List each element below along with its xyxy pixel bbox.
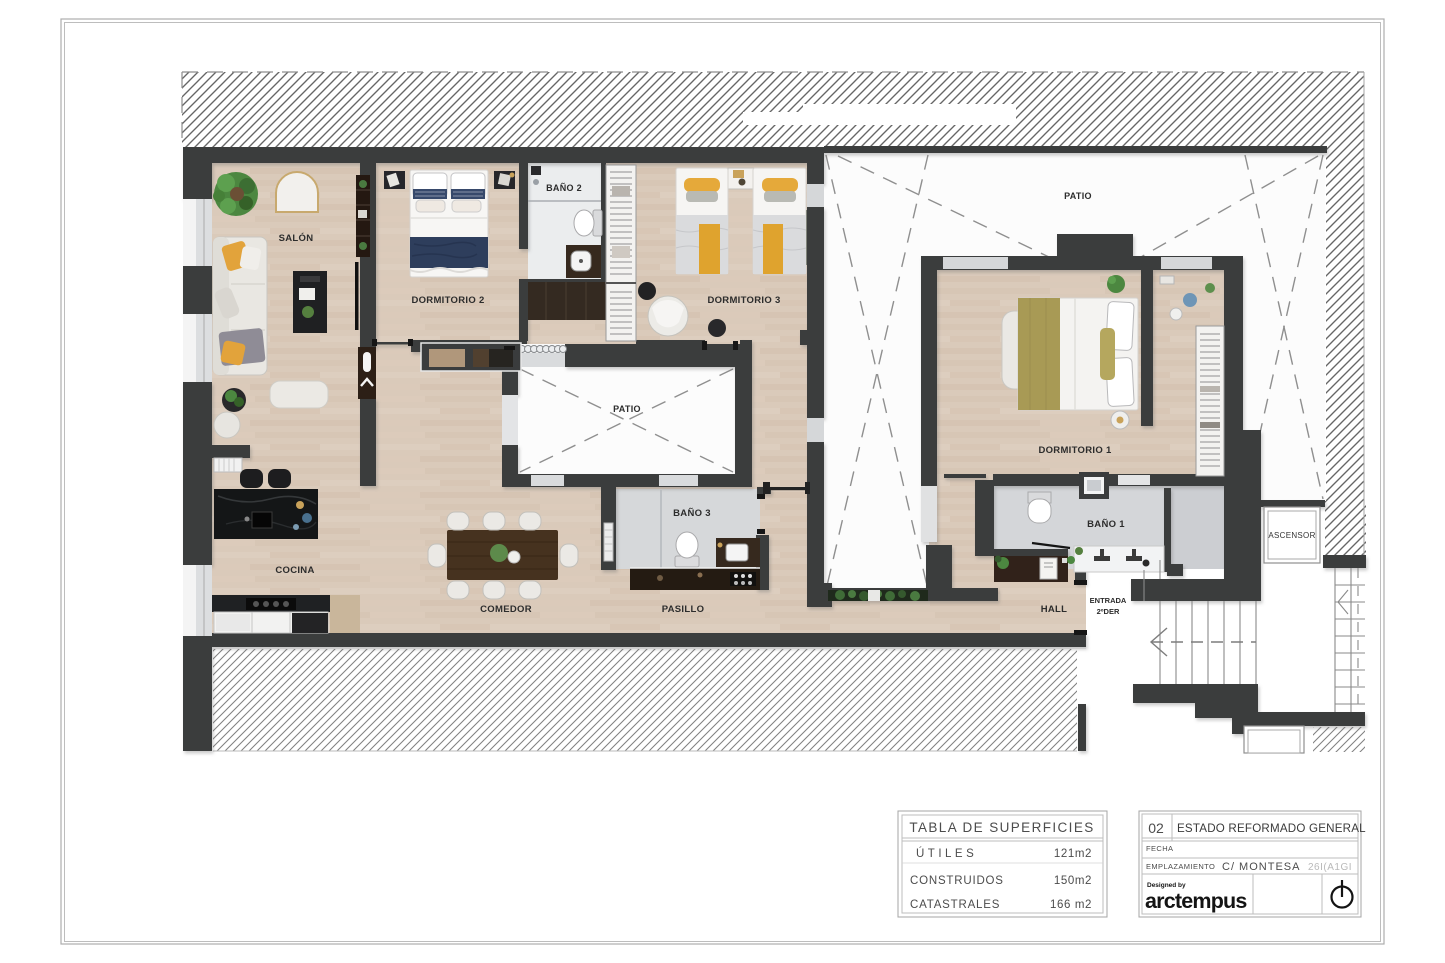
svg-text:2ºDER: 2ºDER [1097,607,1120,616]
svg-text:CONSTRUIDOS: CONSTRUIDOS [910,875,1004,887]
svg-text:BAÑO 3: BAÑO 3 [673,508,711,519]
svg-text:DORMITORIO 2: DORMITORIO 2 [411,295,484,306]
svg-text:EMPLAZAMIENTO: EMPLAZAMIENTO [1146,862,1215,871]
svg-text:ESTADO REFORMADO GENERAL: ESTADO REFORMADO GENERAL [1177,822,1366,835]
svg-text:02: 02 [1148,820,1164,836]
svg-text:DORMITORIO 3: DORMITORIO 3 [707,295,780,306]
svg-text:COCINA: COCINA [275,565,314,576]
svg-text:DORMITORIO 1: DORMITORIO 1 [1038,445,1112,456]
svg-text:CATASTRALES: CATASTRALES [910,899,1000,911]
svg-text:FECHA: FECHA [1146,844,1173,853]
svg-text:150m2: 150m2 [1054,875,1092,887]
svg-text:C/ MONTESA: C/ MONTESA [1222,861,1300,873]
svg-text:BAÑO 2: BAÑO 2 [546,183,582,193]
svg-text:ASCENSOR: ASCENSOR [1268,531,1315,540]
svg-text:PASILLO: PASILLO [662,604,705,615]
svg-text:166 m2: 166 m2 [1050,899,1092,911]
svg-text:arctempus: arctempus [1145,889,1247,913]
svg-text:26I(A1GI: 26I(A1GI [1308,862,1352,873]
svg-text:PATIO: PATIO [1064,191,1092,201]
svg-text:COMEDOR: COMEDOR [480,604,532,615]
svg-text:ÚTILES: ÚTILES [916,847,977,860]
svg-text:121m2: 121m2 [1054,848,1092,860]
svg-text:ENTRADA: ENTRADA [1090,596,1127,605]
svg-text:BAÑO 1: BAÑO 1 [1087,519,1125,530]
svg-text:HALL: HALL [1041,604,1068,615]
svg-text:Designed by: Designed by [1147,882,1186,889]
svg-text:PATIO: PATIO [613,404,641,414]
svg-text:SALÓN: SALÓN [279,232,314,244]
svg-text:TABLA DE SUPERFICIES: TABLA DE SUPERFICIES [909,820,1094,835]
